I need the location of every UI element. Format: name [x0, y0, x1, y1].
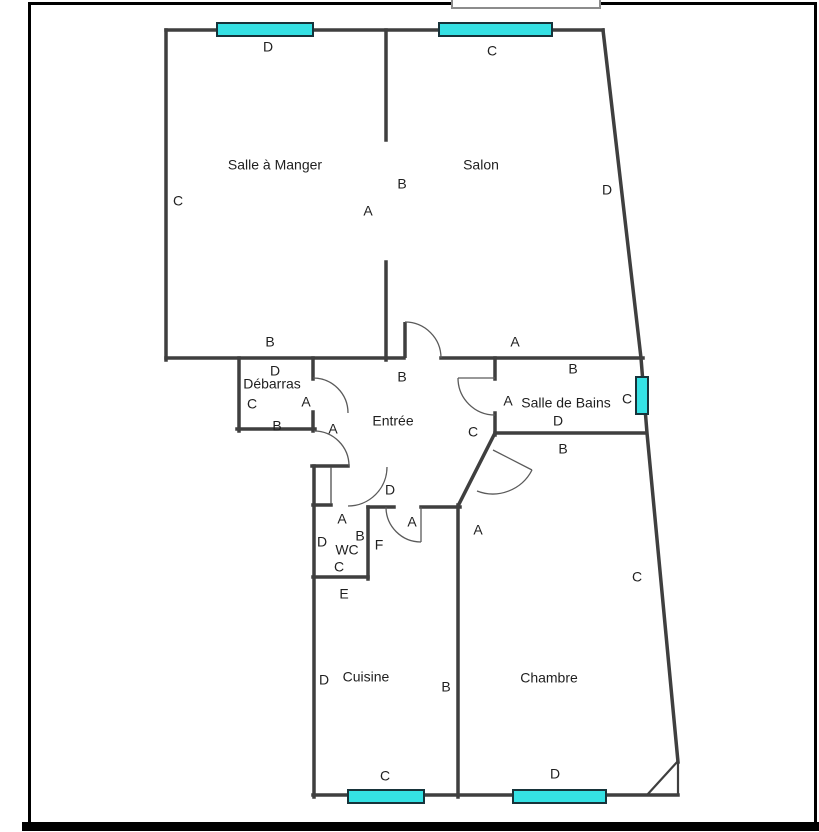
wall-letter-d-32: D	[550, 766, 560, 782]
wall-letter-c-33: C	[632, 569, 642, 585]
wall-letter-d-9: D	[270, 363, 280, 379]
wall-letter-d-24: D	[317, 534, 327, 550]
wc-door-arc	[348, 467, 387, 506]
window-salle-de-bains	[636, 377, 648, 414]
wall-letter-a-15: A	[503, 393, 513, 409]
frame-right-border	[814, 2, 817, 830]
salon-entree-door-arc	[405, 322, 441, 358]
floor-plan-page: Salle à MangerSalonDébarrasEntréeSalle d…	[0, 0, 819, 832]
wall-letter-c-1: C	[487, 43, 497, 59]
wall-letter-c-10: C	[247, 396, 257, 412]
frame-top-border	[28, 2, 816, 5]
wall-letter-b-3: B	[397, 176, 406, 192]
frame-bottom-bar	[22, 822, 819, 831]
wall-letter-b-8: B	[568, 361, 577, 377]
room-label-salle-de-bains: Salle de Bains	[521, 395, 611, 411]
wall-letter-c-31: C	[380, 768, 390, 784]
frame-left-border	[28, 2, 31, 830]
room-label-entree: Entrée	[372, 413, 413, 429]
windows	[217, 23, 648, 803]
room-label-chambre: Chambre	[520, 670, 578, 686]
wall-letter-f-27: F	[375, 537, 384, 553]
wall-letter-b-14: B	[397, 369, 406, 385]
wall-letter-d-17: D	[553, 413, 563, 429]
wall-letter-e-28: E	[339, 586, 348, 602]
frame	[22, 0, 819, 831]
wall-letter-a-20: A	[473, 522, 483, 538]
wall-letter-b-6: B	[265, 334, 274, 350]
room-label-salon: Salon	[463, 157, 499, 173]
wall-letter-c-2: C	[173, 193, 183, 209]
floor-plan-svg: Salle à MangerSalonDébarrasEntréeSalle d…	[0, 0, 819, 832]
wall-letter-d-0: D	[263, 39, 273, 55]
chambre-door-leaf	[493, 450, 532, 470]
bathroom-door-arc	[458, 378, 495, 415]
wall-letter-b-12: B	[272, 418, 281, 434]
walls	[166, 30, 678, 797]
debarras-door-arc	[313, 378, 348, 413]
window-salle-a-manger	[217, 23, 313, 36]
wall-letter-d-21: D	[385, 482, 395, 498]
room-label-wc: WC	[335, 542, 358, 558]
wall-letter-b-30: B	[441, 679, 450, 695]
window-chambre	[513, 790, 606, 803]
wall-letter-b-18: B	[558, 441, 567, 457]
wall-letter-a-22: A	[407, 514, 417, 530]
top-cropped-notch	[452, 0, 600, 8]
wall-letter-c-19: C	[468, 424, 478, 440]
window-cuisine	[348, 790, 424, 803]
chambre-door-arc	[477, 470, 532, 494]
wall-letter-a-7: A	[510, 334, 520, 350]
corner-triangle	[647, 761, 678, 795]
room-label-salle-a-manger: Salle à Manger	[228, 157, 323, 173]
wall-letter-a-11: A	[301, 394, 311, 410]
room-label-cuisine: Cuisine	[343, 669, 390, 685]
wall-letter-c-26: C	[334, 559, 344, 575]
wall-letter-c-16: C	[622, 391, 632, 407]
wall-letter-d-5: D	[602, 182, 612, 198]
entree-chambre-diagonal-wall	[458, 433, 495, 506]
wall-letter-a-13: A	[328, 421, 338, 437]
wall-letter-b-25: B	[355, 528, 364, 544]
wall-letter-a-23: A	[337, 511, 347, 527]
wall-letter-d-29: D	[319, 672, 329, 688]
wall-letter-a-4: A	[363, 203, 373, 219]
window-salon	[439, 23, 552, 36]
labels: Salle à MangerSalonDébarrasEntréeSalle d…	[173, 39, 642, 784]
